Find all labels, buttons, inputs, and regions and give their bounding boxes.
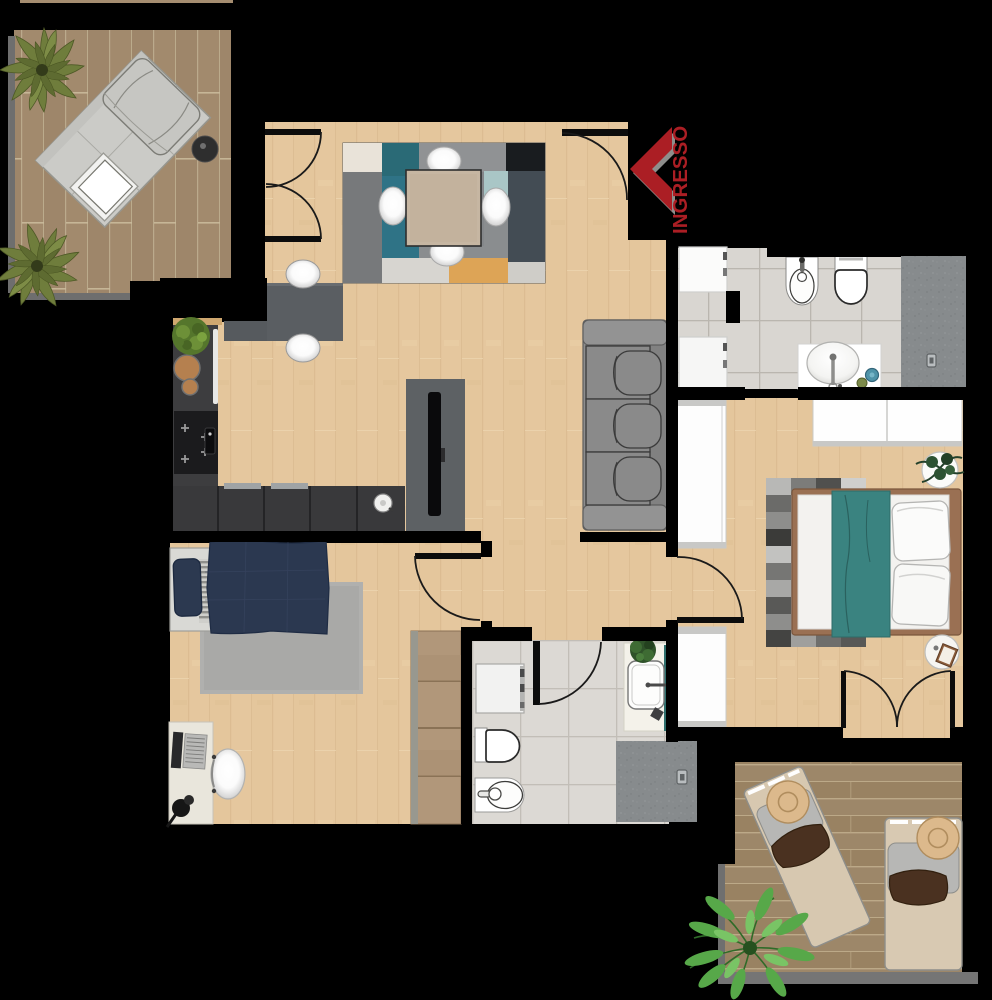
svg-text:INGRESSO: INGRESSO — [669, 126, 692, 234]
